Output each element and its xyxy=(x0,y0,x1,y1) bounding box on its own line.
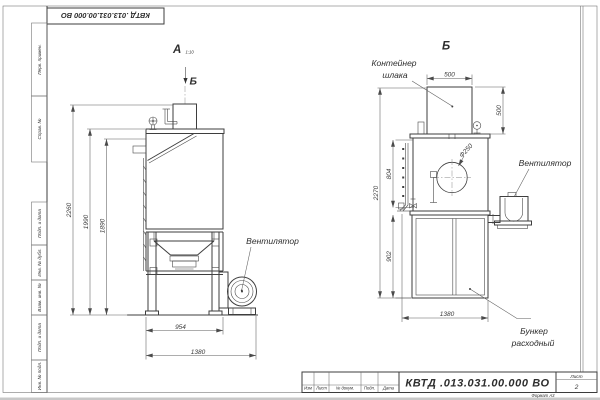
dim-2260: 2260 xyxy=(66,202,73,218)
dim-500-width: 500 xyxy=(444,72,455,79)
dim-804: 804 xyxy=(386,168,393,179)
margin-field-inv-podl: Инв. № подл. xyxy=(37,362,42,391)
titleblock-col-data: Дата xyxy=(382,386,395,391)
margin-field-podp-data-2: Подп. и дата xyxy=(37,323,42,352)
view-a-label: А xyxy=(172,44,181,56)
dim-954: 954 xyxy=(175,324,186,331)
view-b-fan-callout: Вентилятор xyxy=(519,158,572,168)
titleblock-sheet-value: 2 xyxy=(574,384,579,391)
section-arrow-b-label: Б xyxy=(190,76,198,88)
top-stamp-doc-number: КВТД .013.031.00.000 ВО xyxy=(61,11,150,20)
container-callout-line2: шлака xyxy=(382,70,408,80)
dim-500-height: 500 xyxy=(496,105,503,116)
view-b-label: Б xyxy=(442,41,450,53)
margin-field-vzam-inv: Взам. инв. № xyxy=(37,283,42,311)
margin-field-perv-primen: Перв. примен. xyxy=(37,44,42,75)
format-note: Формат А3 xyxy=(532,393,556,398)
bunker-callout-line1: Бункер xyxy=(520,326,548,336)
titleblock-sheet-label: Лист xyxy=(569,374,582,380)
drawing-sheet: КВТД .013.031.00.000 ВО Перв. примен. Сп… xyxy=(0,0,600,400)
view-a-label-note: 1:10 xyxy=(186,50,195,55)
margin-field-inv-dubl: Инв. № дубл. xyxy=(37,248,42,276)
drawing-canvas: КВТД .013.031.00.000 ВО Перв. примен. Сп… xyxy=(0,0,600,400)
dim-1990: 1990 xyxy=(83,214,90,229)
dim-1380-b: 1380 xyxy=(440,311,455,318)
titleblock-col-list: Лист xyxy=(315,386,327,391)
margin-field-sprav-no: Справ. № xyxy=(37,119,42,140)
dim-2270: 2270 xyxy=(373,185,380,201)
titleblock-col-podp: Подп. xyxy=(364,386,375,391)
dim-1890: 1890 xyxy=(100,218,107,233)
titleblock-col-izm: Изм xyxy=(304,386,312,391)
dim-902: 902 xyxy=(386,251,393,262)
bunker-callout-line2: расходный xyxy=(511,338,555,348)
container-callout-line1: Контейнер xyxy=(371,58,416,68)
titleblock-doc-number: КВТД .013.031.00.000 ВО xyxy=(405,378,549,390)
view-a-fan-callout: Вентилятор xyxy=(246,236,299,246)
dim-1380-a: 1380 xyxy=(191,349,206,356)
margin-field-podp-data-1: Подп. и дата xyxy=(37,209,42,238)
titleblock-col-dokum: № докум. xyxy=(336,386,354,391)
